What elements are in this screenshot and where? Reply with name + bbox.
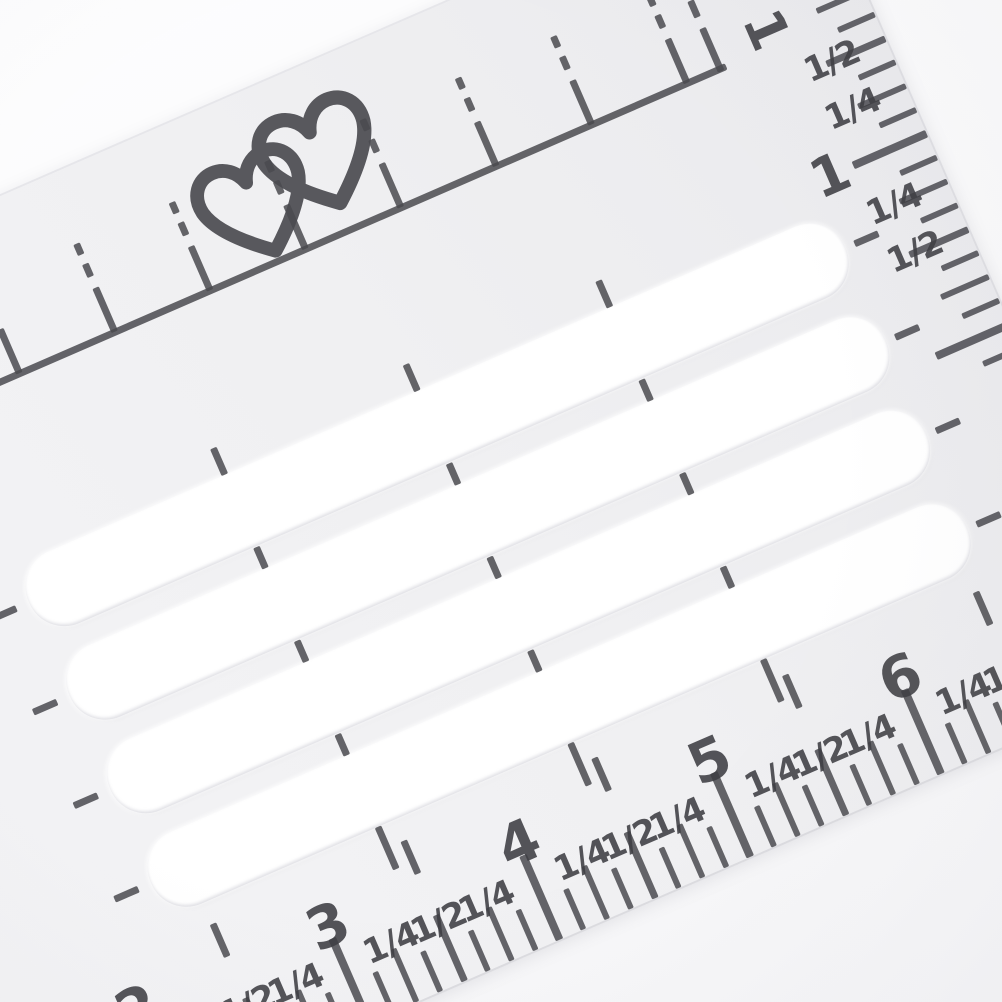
guide-tick-dash [645, 0, 656, 7]
slot-gap-tick [595, 279, 613, 308]
eighth-inch-tick [325, 992, 348, 1002]
guide-tick [0, 328, 22, 375]
eighth-inch-tick [982, 345, 1002, 366]
guide-tick-dash [177, 221, 189, 237]
slot-gap-tick [293, 639, 309, 663]
eighth-inch-tick [706, 826, 729, 869]
guide-tick-dash [73, 243, 84, 257]
guide-tick [92, 287, 118, 334]
slot-gap-tick [252, 545, 268, 569]
eighth-inch-tick [897, 743, 920, 786]
guide-tick-dash [82, 263, 94, 279]
eighth-inch-tick [961, 298, 1000, 319]
ruler-body: 234561/41/21/41/41/21/41/41/21/41/41/21/… [0, 0, 1002, 1002]
inch-tick [935, 321, 1002, 360]
slot-end-tick [32, 698, 59, 715]
eighth-inch-tick [849, 763, 872, 806]
half-inch-interior-tick [781, 674, 802, 710]
half-inch-interior-tick [400, 840, 421, 876]
half-inch-interior-tick [972, 591, 993, 627]
slot-end-tick [894, 323, 921, 340]
quarter-inch-tick [940, 274, 990, 300]
guide-tick-dash [558, 55, 570, 71]
slot-gap-tick [334, 733, 350, 757]
guide-tick-dash [454, 77, 465, 91]
eighth-inch-tick [372, 971, 395, 1002]
guide-tick-dash [463, 97, 475, 113]
slot-gap-tick [486, 555, 502, 579]
slot-gap-tick [526, 649, 542, 673]
eighth-inch-tick [837, 12, 876, 33]
heart-right-outline [250, 89, 390, 224]
eighth-inch-tick [992, 701, 1002, 744]
scale-fraction: 1/4 [813, 79, 893, 139]
eighth-inch-tick [899, 155, 938, 176]
eighth-inch-tick [420, 950, 443, 993]
guide-corner-dash [687, 0, 701, 19]
guide-tick [664, 38, 690, 85]
guide-tick-dash [550, 35, 561, 49]
slot-gap-tick [210, 447, 228, 476]
slot-gap-tick [678, 472, 694, 496]
eighth-inch-tick [945, 722, 968, 765]
slot-end-tick [113, 885, 140, 902]
eighth-inch-tick [802, 784, 825, 827]
scale-fraction: 1/2 [875, 222, 955, 282]
eighth-inch-tick [468, 929, 491, 972]
eighth-inch-tick [659, 846, 682, 889]
slot-gap-tick [759, 658, 784, 703]
eighth-inch-tick [754, 805, 777, 848]
scale-fraction: 1/4 [826, 705, 909, 766]
half-inch-interior-tick [591, 757, 612, 793]
slot-gap-tick [445, 462, 461, 486]
slot-gap-tick [402, 363, 420, 392]
scale-fraction: 1/4 [445, 871, 528, 932]
guide-tick-dash [168, 201, 179, 215]
slot-end-tick [0, 605, 18, 622]
slot-end-tick [72, 792, 99, 809]
half-inch-interior-tick [209, 922, 230, 958]
scale-fraction: 1/4 [636, 788, 719, 849]
guide-tick-dash [654, 14, 666, 30]
eighth-inch-tick [611, 867, 634, 910]
slot-gap-tick [719, 565, 735, 589]
guide-tick [473, 121, 499, 168]
quarter-inch-tick [815, 0, 865, 14]
slot-end-tick [975, 511, 1002, 528]
eighth-inch-tick [515, 909, 538, 952]
eighth-inch-tick [563, 888, 586, 931]
slot-end-tick [934, 417, 961, 434]
slot-gap-tick [567, 742, 592, 787]
guide-corner-vertical [699, 27, 724, 73]
ruler-product-photo: 234561/41/21/41/41/21/41/41/21/41/41/21/… [0, 0, 1002, 1002]
slot-gap-tick [374, 826, 399, 871]
scale-fraction: 1/2 [792, 31, 872, 91]
slot-gap-tick [638, 378, 654, 402]
scale-number: 2 [84, 965, 188, 1002]
guide-tick [569, 79, 595, 126]
